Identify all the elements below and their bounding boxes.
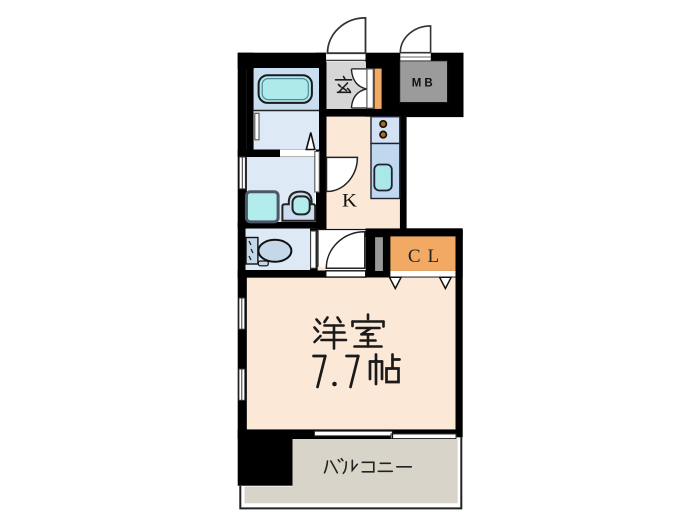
svg-text:CL: CL	[408, 246, 446, 267]
svg-text:K: K	[342, 191, 357, 212]
svg-text:MB: MB	[412, 78, 436, 90]
